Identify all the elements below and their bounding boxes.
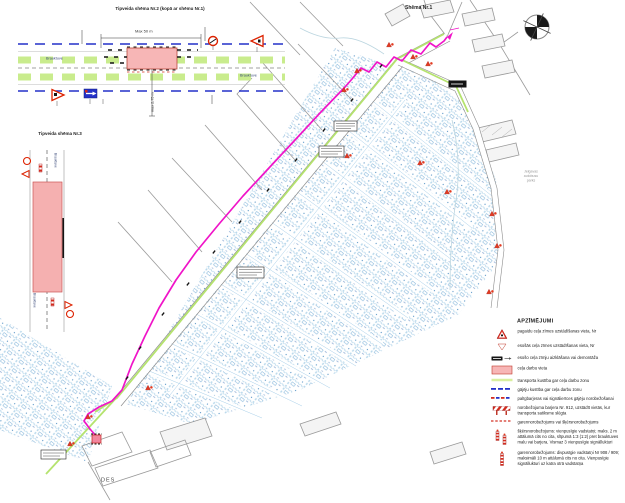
scheme3-signs-top bbox=[22, 158, 42, 178]
legend-title: APZĪMĒJUMI bbox=[517, 318, 625, 324]
legend-item-work-area: ceļa darbu vieta bbox=[490, 366, 625, 375]
legend-item-longitudinal-barrier: garennorobežojums vai šķērsnorobežojums bbox=[490, 419, 625, 424]
scheme2-sign-warning-right bbox=[251, 36, 263, 53]
scheme2-lane-label-left: Brauktuve bbox=[46, 56, 80, 65]
work-area-swatch bbox=[490, 366, 514, 375]
legend-item-long-delineators: garennorobežojums: divpusīgie vadstatņi … bbox=[490, 450, 625, 468]
scheme2-title: Tipveida shēma Nr.2 (kopā ar shēmu Nr.1) bbox=[60, 6, 260, 16]
legend-item-cross-delineators: šķērsnorobežojums: vienpusīgie vadstatņi… bbox=[490, 428, 625, 446]
scheme2-dim-label: Max 50 m bbox=[135, 29, 170, 38]
delineator-posts-icon bbox=[490, 428, 514, 446]
scheme3-graphic bbox=[22, 150, 74, 332]
legend-item-traffic-lane: transporta kustība gar ceļa darbu zonu bbox=[490, 378, 625, 383]
covered-sign-icon bbox=[490, 355, 514, 362]
scheme2-sign-roadworks bbox=[52, 90, 64, 107]
scheme3-signs-bottom bbox=[51, 298, 74, 318]
legend-item-existing-sign: esošās ceļa zīmes uzstādīšanas vieta, Nr bbox=[490, 343, 625, 352]
work-site-end-box bbox=[91, 434, 102, 444]
aux-barrier-swatch bbox=[490, 396, 514, 400]
scheme2-sign-no-entry bbox=[209, 37, 218, 51]
barrier-912-icon bbox=[490, 405, 514, 416]
pedestrian-path-swatch bbox=[490, 387, 514, 391]
scheme2-lane-label-right: Brauktuve bbox=[240, 73, 274, 82]
scheme2-vdim-label: max 2,75 m bbox=[150, 112, 189, 121]
inverted-triangle-icon bbox=[490, 343, 514, 352]
legend-item-covered-sign: esošo ceļa zīmju aizklāšana vai demontāž… bbox=[490, 355, 625, 362]
schema1-label: Shēma Nr.1 bbox=[405, 5, 459, 16]
scheme2-dimension bbox=[82, 27, 212, 116]
scheme3-lane-label-top: Brauktuve bbox=[57, 153, 86, 160]
delineator-post-icon bbox=[490, 450, 514, 468]
scheme3-title: Tipveida shēma Nr.3 bbox=[15, 131, 105, 141]
legend-item-barrier-912: norobežojuma barjera Nr. 912, uzstādīt v… bbox=[490, 405, 625, 416]
legend-item-pedestrian-path: gājēju kustība gar ceļa darbu zonu bbox=[490, 387, 625, 392]
area-label: Jelgavas autobusu parks bbox=[506, 170, 556, 196]
scheme2-sign-detour bbox=[84, 89, 103, 104]
legend-item-temporary-sign: pagaidu ceļa zīmes uzstādīšanas vieta, N… bbox=[490, 329, 625, 340]
traffic-scheme-drawing: Tipveida shēma Nr.2 (kopā ar shēmu Nr.1)… bbox=[0, 0, 625, 503]
des-label: DES bbox=[101, 477, 130, 489]
scheme3-lane-label-bottom: Brauktuve bbox=[36, 293, 65, 300]
scheme3-work-zone bbox=[33, 182, 62, 292]
legend: APZĪMĒJUMI pagaidu ceļa zīmes uzstādīšan… bbox=[490, 318, 625, 503]
longitudinal-barrier-swatch bbox=[490, 419, 514, 422]
legend-item-aux-barriers: palīgbarjeras vai signālierīces gājēju n… bbox=[490, 396, 625, 401]
compass-rose bbox=[517, 7, 557, 47]
traffic-lane-swatch bbox=[490, 378, 514, 382]
warning-triangle-icon bbox=[490, 329, 514, 340]
scheme2-work-zone bbox=[127, 48, 177, 69]
